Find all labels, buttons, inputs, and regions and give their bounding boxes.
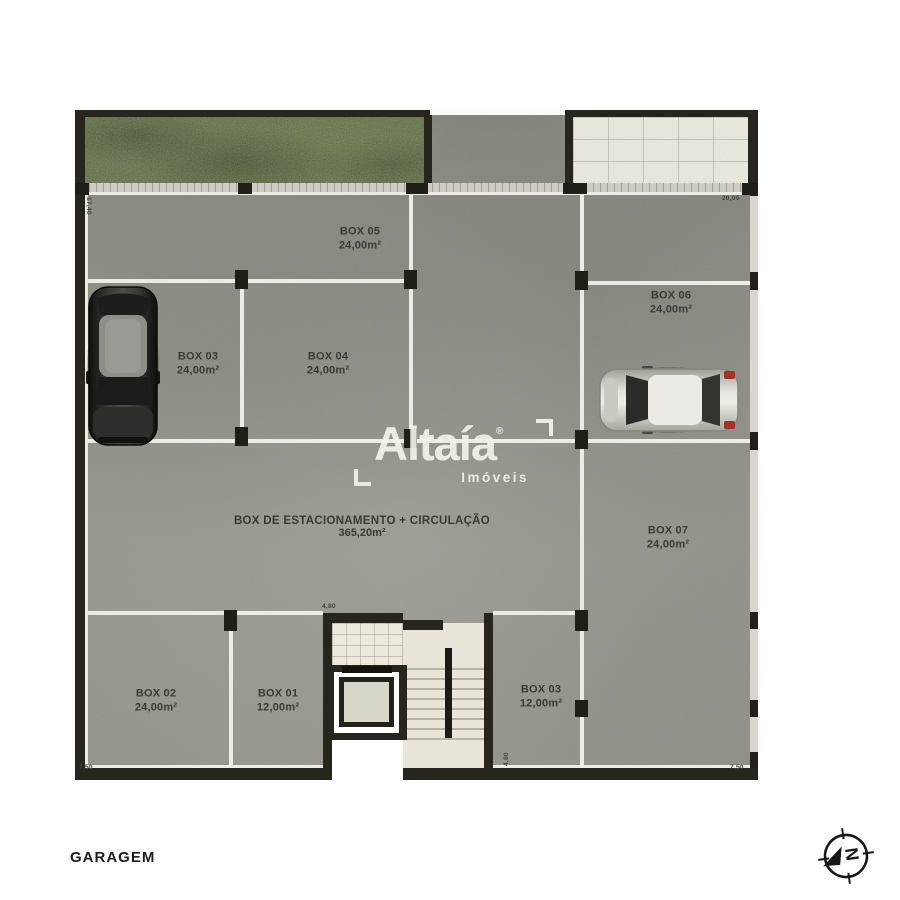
band-pillar	[75, 183, 89, 195]
dimension-bottom-left: 7,50	[79, 764, 93, 771]
box-label-05: BOX 0524,00m²	[339, 225, 381, 254]
dimension-left-side: 17,40	[85, 197, 92, 215]
box-label-02: BOX 0224,00m²	[135, 687, 177, 716]
dimension-core-top: 4,80	[322, 603, 336, 610]
core-wall-stub	[403, 620, 443, 630]
right-wall-pillar	[750, 432, 758, 450]
column-pillar	[404, 270, 417, 289]
compass-north-letter: N	[841, 846, 863, 862]
band-pillar	[563, 183, 587, 194]
box-label-03a: BOX 0324,00m²	[177, 350, 219, 379]
stairs-steps	[403, 660, 484, 740]
patio-right-wall	[748, 110, 758, 185]
right-wall-pillar	[750, 272, 758, 290]
central-area-label: BOX DE ESTACIONAMENTO + CIRCULAÇÃO 365,2…	[234, 515, 490, 539]
core-lobby	[332, 623, 403, 667]
box-label-03b: BOX 0312,00m²	[520, 683, 562, 712]
dark-car-illustration	[86, 285, 160, 447]
column-pillar	[224, 610, 237, 631]
patio-top-wall	[565, 110, 758, 117]
divider-line	[409, 194, 413, 443]
stairs-handrail	[445, 648, 452, 738]
left-wall	[75, 110, 85, 780]
registered-mark: ®	[496, 426, 503, 437]
column-pillar	[235, 427, 248, 446]
silver-car-illustration	[598, 366, 740, 434]
divider-line	[240, 281, 244, 441]
right-wall-pillar	[750, 700, 758, 717]
patio-left-wall	[565, 115, 573, 183]
brand-logo: Altaía® Imóveis	[374, 420, 529, 485]
column-pillar	[575, 430, 588, 449]
band-pillar	[742, 183, 758, 195]
dimension-bottom-right: 7,50	[730, 764, 744, 771]
box-label-01: BOX 0112,00m²	[257, 687, 299, 716]
divider-line	[229, 613, 233, 768]
core-opening	[332, 740, 403, 784]
floorplan-page: BOX 0524,00m² BOX 0624,00m² BOX 0324,00m…	[0, 0, 900, 900]
divider-line	[582, 281, 750, 285]
divider-line	[493, 611, 582, 615]
grass-top-wall	[75, 110, 430, 117]
dimension-top-right: 20,00	[722, 195, 740, 202]
column-pillar	[575, 700, 588, 717]
elevator-door	[342, 666, 392, 673]
divider-line	[85, 611, 323, 615]
right-wall-pillar	[750, 612, 758, 629]
page-title: GARAGEM	[70, 849, 155, 866]
box-label-06: BOX 0624,00m²	[650, 289, 692, 318]
divider-line	[85, 279, 412, 283]
column-pillar	[235, 270, 248, 289]
elevator-cab	[339, 677, 394, 727]
core-right-wall	[484, 613, 493, 768]
band-pillar	[406, 183, 428, 194]
box-label-04: BOX 0424,00m²	[307, 350, 349, 379]
grass-right-wall	[424, 115, 432, 183]
logo-bracket-top-right	[536, 419, 553, 436]
box-label-07: BOX 0724,00m²	[647, 524, 689, 553]
core-top-wall	[323, 613, 403, 623]
right-wall	[750, 183, 758, 768]
logo-bracket-bottom-left	[354, 469, 371, 486]
tiled-patio	[573, 117, 748, 183]
grass-area	[85, 117, 424, 183]
wall-edge-line	[85, 194, 88, 768]
bottom-wall	[75, 768, 758, 780]
right-wall-pillar	[750, 752, 758, 768]
brand-logo-subtitle: Imóveis	[374, 470, 529, 485]
column-pillar	[575, 271, 588, 290]
dimension-core-side: 4,80	[503, 752, 510, 766]
column-pillar	[575, 610, 588, 631]
band-pillar	[238, 183, 252, 194]
north-compass-icon: N	[810, 820, 882, 892]
